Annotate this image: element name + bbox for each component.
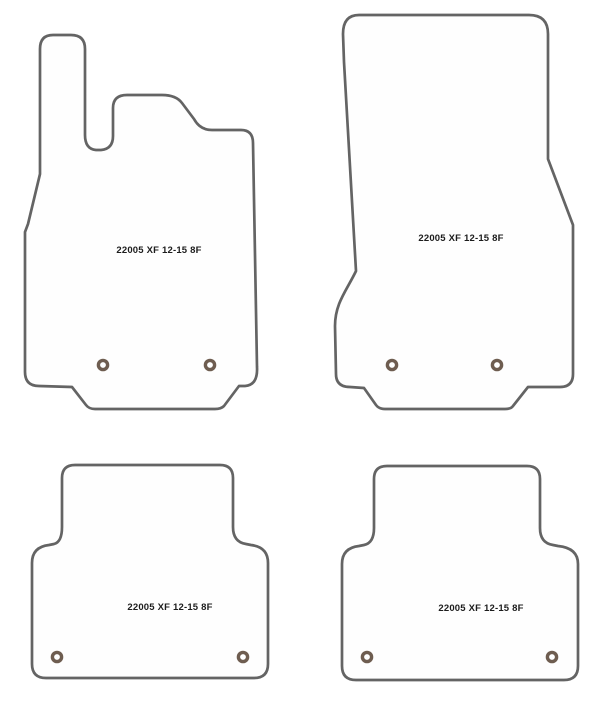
rear-left-mat-outline [32, 465, 268, 678]
front-right-grommet-hole-right [492, 360, 501, 369]
rear-right-mat: 22005 XF 12-15 8F [342, 466, 578, 680]
front-right-mat: 22005 XF 12-15 8F [335, 15, 573, 409]
front-left-grommet-hole-left [98, 360, 107, 369]
rear-right-mat-label: 22005 XF 12-15 8F [438, 603, 523, 614]
rear-right-grommet-hole-right [547, 652, 556, 661]
front-left-mat-outline [25, 35, 257, 409]
rear-left-grommet-hole-left [52, 652, 61, 661]
front-left-mat-label: 22005 XF 12-15 8F [116, 245, 201, 256]
rear-left-mat: 22005 XF 12-15 8F [32, 465, 268, 678]
rear-left-grommet-hole-right [238, 652, 247, 661]
floor-mat-diagram: 22005 XF 12-15 8F 22005 XF 12-15 8F 2200… [0, 0, 600, 703]
rear-left-mat-label: 22005 XF 12-15 8F [127, 602, 212, 613]
rear-right-grommet-hole-left [362, 652, 371, 661]
front-right-grommet-hole-left [387, 360, 396, 369]
rear-right-mat-outline [342, 466, 578, 680]
mat-set-drawing: 22005 XF 12-15 8F 22005 XF 12-15 8F 2200… [0, 0, 600, 703]
front-left-mat: 22005 XF 12-15 8F [25, 35, 257, 409]
front-right-mat-label: 22005 XF 12-15 8F [418, 233, 503, 244]
front-right-mat-outline [335, 15, 573, 409]
front-left-grommet-hole-right [205, 360, 214, 369]
